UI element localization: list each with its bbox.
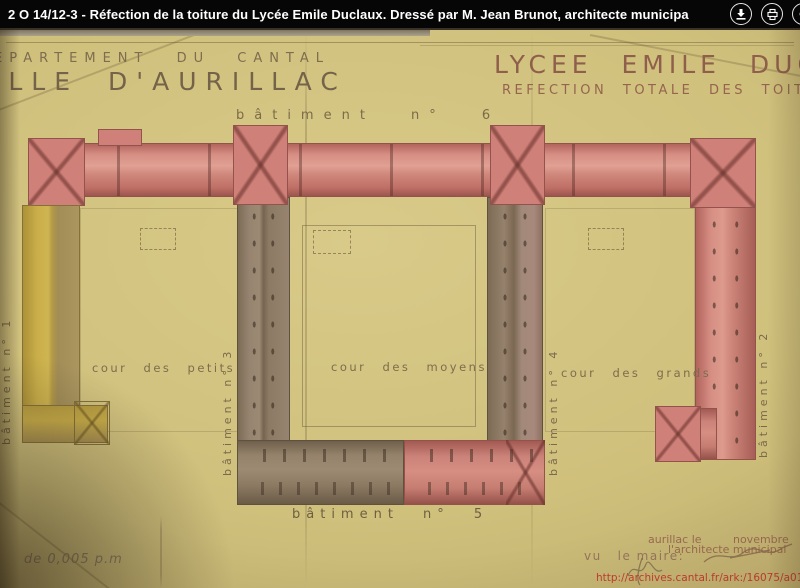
- archive-url: http://archives.cantal.fr/ark:/16075/a01…: [596, 572, 800, 584]
- main-title: LYCEE EMILE DUCLAUX: [494, 50, 800, 79]
- label-cour-des-petits: cour des petits: [92, 361, 235, 375]
- roof-batiment-6-bar: [28, 143, 745, 197]
- roof-batiment-5-left: [237, 440, 404, 505]
- scan-bottom-edge: [0, 28, 800, 30]
- download-icon: [735, 8, 747, 20]
- roof-pavilion-junction-3: [233, 125, 288, 205]
- scale-note: de 0,005 p.m: [24, 552, 123, 567]
- plan-detail-rect: [588, 228, 624, 250]
- roof-batiment-5-hip-end: [506, 440, 545, 505]
- document-scan[interactable]: ÉPARTEMENT DU CANTAL ILLE D'AURILLAC LYC…: [0, 28, 800, 588]
- print-icon: [766, 8, 779, 21]
- roof-batiment-1-foot-pavilion: [74, 401, 110, 445]
- label-batiment-1: bâtiment n° 1: [0, 240, 13, 445]
- roof-pavilion-right-end: [690, 138, 756, 208]
- roof-pavilion-left-end: [28, 138, 85, 206]
- fold-crease: [0, 490, 150, 588]
- label-cour-des-grands: cour des grands: [561, 366, 711, 380]
- expand-button[interactable]: [792, 3, 800, 25]
- paper-border-line-2: [420, 45, 794, 46]
- plan-detail-rect: [140, 228, 176, 250]
- subtitle: REFECTION TOTALE DES TOITURES: [502, 83, 800, 98]
- roof-pavilion-junction-4: [490, 125, 545, 205]
- label-cour-des-moyens: cour des moyens: [331, 360, 487, 374]
- courtyard-outline-middle: [302, 225, 476, 427]
- roof-batiment-2-foot-pavilion: [655, 406, 701, 462]
- title-bar: 2 O 14/12-3 - Réfection de la toiture du…: [0, 0, 800, 28]
- toolbar: [730, 3, 800, 25]
- roof-batiment-3: [237, 197, 290, 470]
- plan-detail-rect: [313, 230, 351, 254]
- paper-border-line: [6, 42, 794, 43]
- roof-batiment-4: [487, 197, 543, 470]
- roof-pavilion-bump: [98, 129, 142, 146]
- archive-viewer: 2 O 14/12-3 - Réfection de la toiture du…: [0, 0, 800, 588]
- department-title: ÉPARTEMENT DU CANTAL: [0, 51, 330, 66]
- label-batiment-3: bâtiment n° 3: [221, 296, 234, 476]
- label-batiment-6: bâtiment n° 6: [236, 108, 500, 123]
- label-batiment-4: bâtiment n° 4: [547, 276, 560, 476]
- download-button[interactable]: [730, 3, 752, 25]
- city-title: ILLE D'AURILLAC: [0, 67, 347, 96]
- label-batiment-2: bâtiment n° 2: [757, 243, 770, 458]
- document-title: 2 O 14/12-3 - Réfection de la toiture du…: [0, 7, 689, 22]
- print-button[interactable]: [761, 3, 783, 25]
- signature-architect: [700, 538, 796, 572]
- roof-batiment-1: [22, 205, 80, 413]
- fold-crease: [160, 516, 162, 588]
- label-batiment-5: bâtiment n° 5: [292, 507, 488, 522]
